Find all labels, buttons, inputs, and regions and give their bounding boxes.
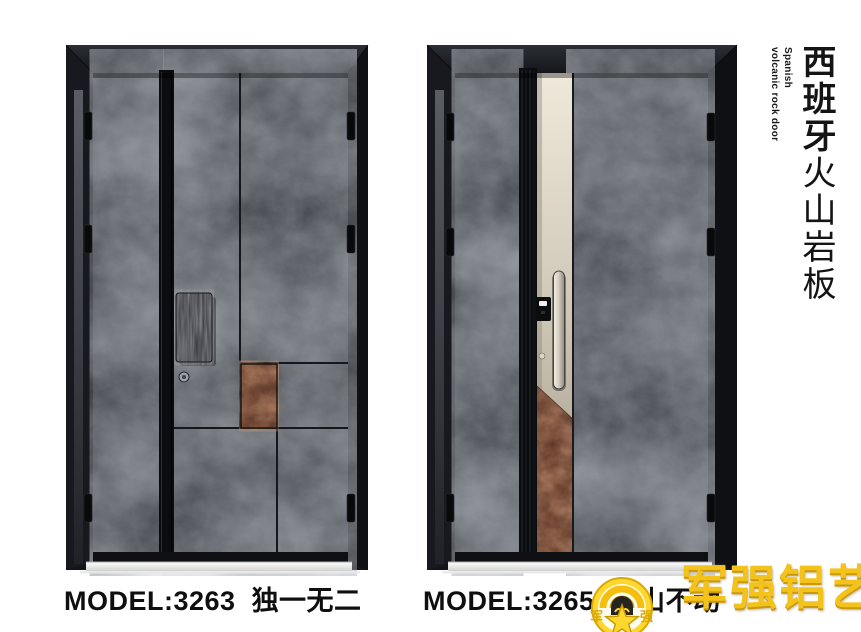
right-frame-header <box>427 45 737 73</box>
right-frame-edge-highlight <box>435 90 444 564</box>
right-door-bottom-rail <box>455 552 708 562</box>
left-door-handle-plate <box>176 293 216 366</box>
right-door <box>427 45 737 574</box>
door-artwork <box>0 0 861 632</box>
right-door-lock-box <box>535 297 551 321</box>
chinese-title: 西班牙火山岩板 <box>799 44 833 303</box>
left-door-lock <box>179 372 189 382</box>
right-door-side-leaf <box>455 73 520 552</box>
left-frame-edge-highlight <box>74 90 83 564</box>
left-frame-header <box>66 45 368 73</box>
english-subtitle-line1: Spanish <box>781 47 794 141</box>
left-door <box>66 45 368 574</box>
left-door-handle-bar <box>159 70 174 562</box>
rust-accent-panel <box>241 364 277 428</box>
brand-wordmark: 军强铝艺 <box>681 564 861 611</box>
badge-char-right: 强 <box>640 609 653 624</box>
right-door-pull-handle <box>552 271 566 391</box>
right-door-handle-bar <box>519 68 537 562</box>
right-door-threshold <box>448 562 712 571</box>
model-label-3265: MODEL:3265层山不动 <box>423 579 721 618</box>
model-name: 独一无二 <box>252 586 362 616</box>
model-number: MODEL:3265 <box>423 586 595 616</box>
english-subtitle: Spanish volcanic rock door <box>768 47 794 141</box>
chinese-title-light: 火山岩板 <box>797 155 835 303</box>
badge-char-left: 军 <box>590 609 603 624</box>
catalog-page: Spanish volcanic rock door 西班牙火山岩板 MODEL… <box>0 0 861 632</box>
right-door-keyhole <box>539 353 545 359</box>
left-door-threshold <box>86 562 352 571</box>
model-label-3263: MODEL:3263独一无二 <box>64 579 362 618</box>
left-door-bottom-rail <box>93 552 348 562</box>
chinese-title-bold: 西班牙 <box>797 44 835 155</box>
model-number: MODEL:3263 <box>64 586 236 616</box>
brand-badge: 军 强 <box>584 563 664 632</box>
english-subtitle-line2: volcanic rock door <box>768 47 781 141</box>
right-door-main-leaf <box>573 73 708 552</box>
left-door-side-leaf <box>93 73 160 552</box>
